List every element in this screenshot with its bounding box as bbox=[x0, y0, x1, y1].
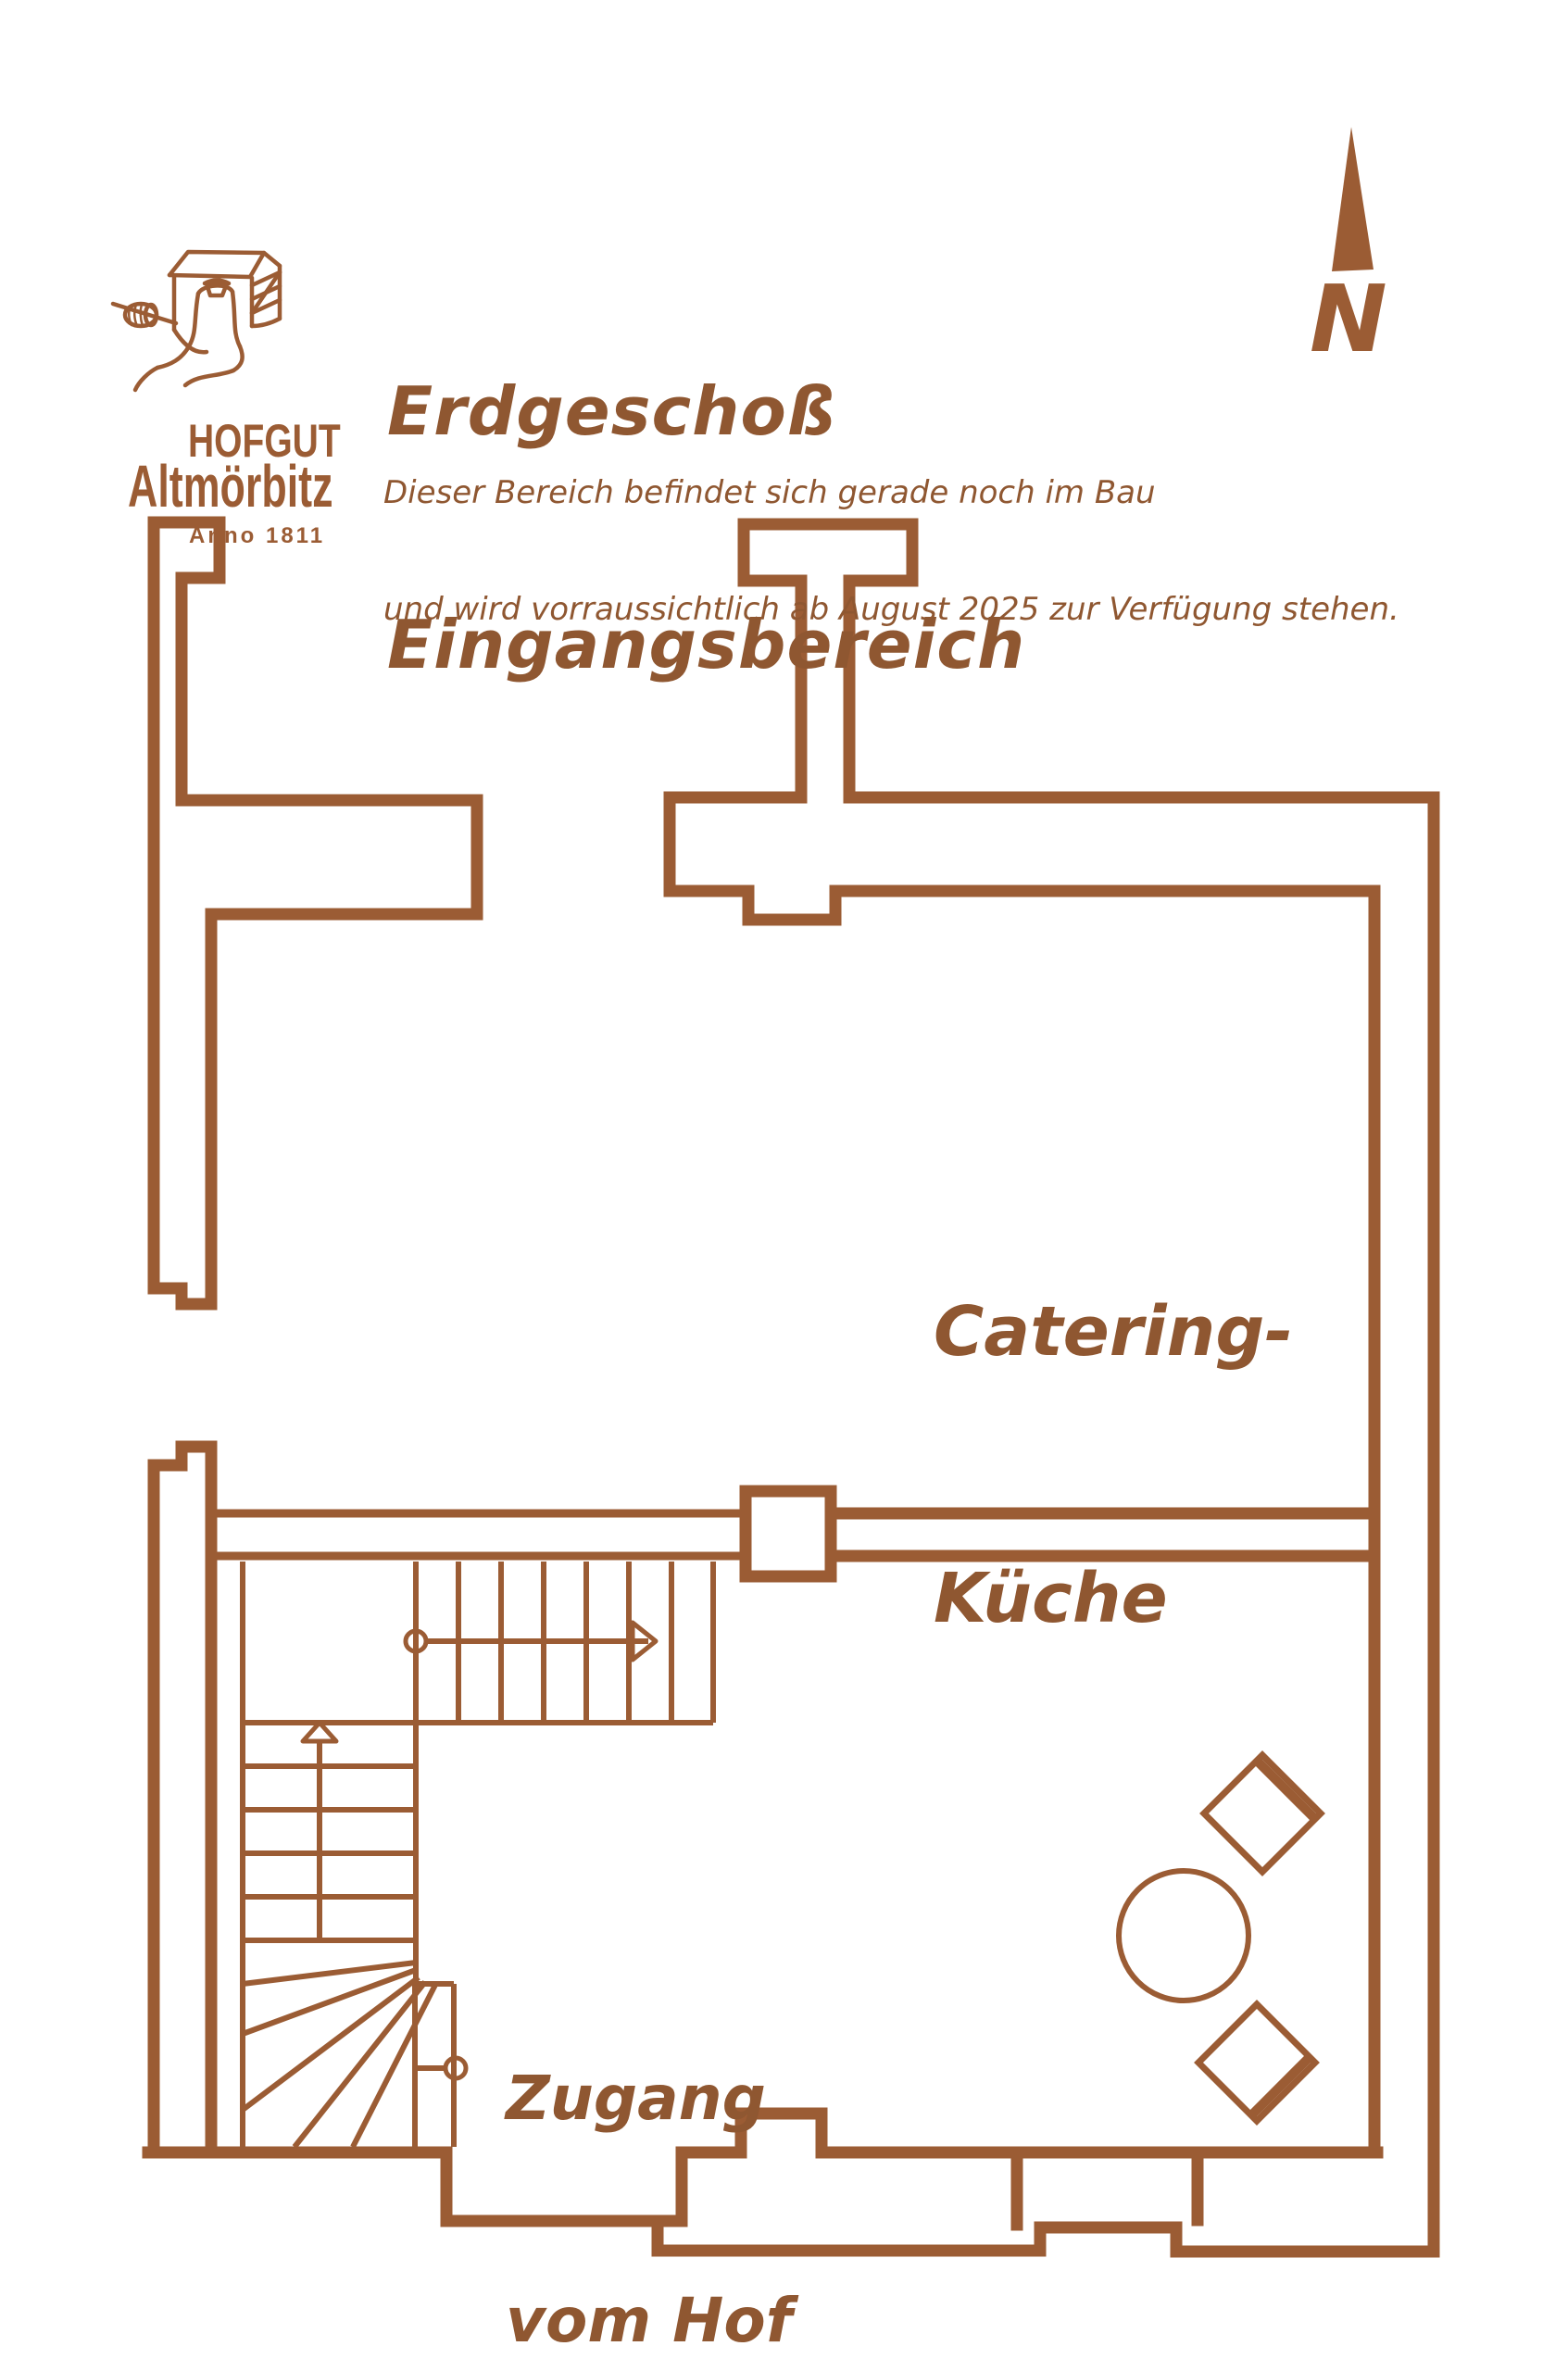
construction-note: Dieser Bereich befindet sich gerade noch… bbox=[383, 395, 1399, 707]
stair-direction-arrow-upper bbox=[406, 1623, 656, 1660]
wall-lower-left-inner bbox=[154, 1447, 211, 2152]
logo-brand-line2: Altmörbitz bbox=[128, 452, 332, 521]
stair-lower-treads bbox=[243, 1723, 416, 1984]
room-label-courtyard-access: Zugang vom Hof bbox=[506, 1913, 792, 2371]
round-table bbox=[1119, 1871, 1248, 2001]
logo-brand-anno: Anno 1811 bbox=[189, 523, 325, 549]
pillar bbox=[746, 1491, 831, 1576]
stair-winder-treads bbox=[243, 1963, 454, 2147]
north-label: N bbox=[1310, 265, 1387, 373]
room-label-catering-kitchen: Catering- Küche bbox=[934, 1110, 1293, 1821]
north-arrow-icon bbox=[1332, 127, 1374, 271]
stair-direction-arrow-lower bbox=[303, 1723, 466, 2078]
construction-note-line2: und wird vorraussichtlich ab August 2025… bbox=[383, 590, 1399, 629]
chair-lower bbox=[1198, 2004, 1315, 2121]
floor-plan-page: HOFGUT Altmörbitz Anno 1811 Erdgeschoß E… bbox=[0, 0, 1568, 2371]
construction-note-line1: Dieser Bereich befindet sich gerade noch… bbox=[383, 473, 1399, 512]
wall-middle-left bbox=[216, 1513, 746, 1556]
barn-logo-icon bbox=[113, 252, 280, 390]
